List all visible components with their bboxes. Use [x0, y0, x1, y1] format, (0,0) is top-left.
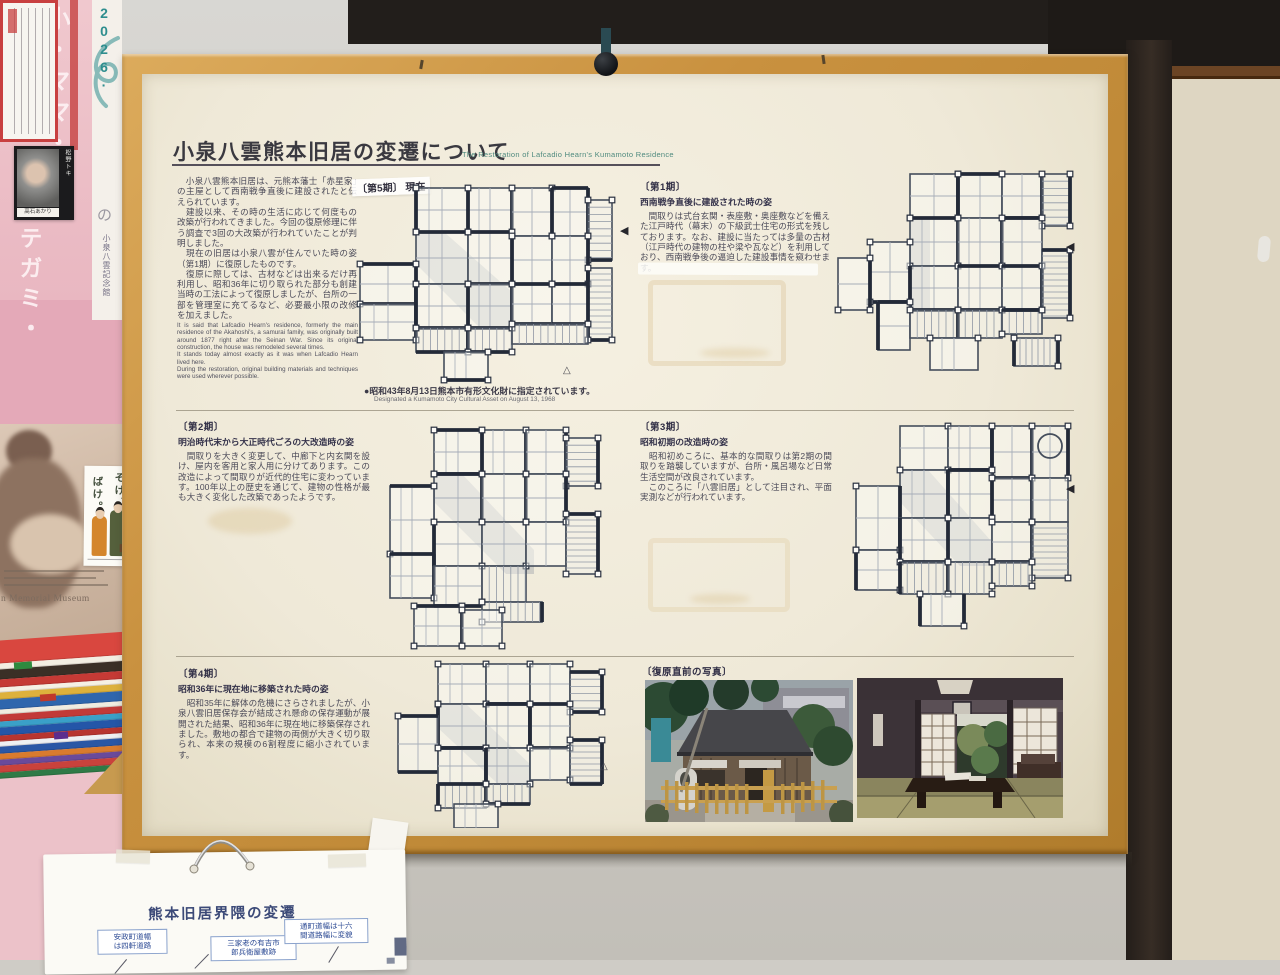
floor-plan-period5	[356, 184, 632, 384]
poster-word-bottom: テガミ・	[12, 226, 46, 356]
actor-portrait	[17, 149, 59, 207]
section4-body: 昭和35年に解体の危機にさらされましたが、小泉八雲旧居保存会が結成され懸命の保存…	[178, 698, 370, 760]
actor-name-strip: 髙石あかり	[17, 208, 59, 217]
red-border-notice	[0, 0, 58, 142]
intro-text-jp: 小泉八雲熊本旧居は、元熊本藩士「赤星家」の主屋として西南戦争直後に建設されたと伝…	[177, 176, 357, 320]
banner-swash-graphic	[84, 34, 122, 110]
section2-body: 間取りを大きく変更して、中廊下と内玄関を設け、屋内を客用と家人用に分けてあります…	[178, 451, 370, 503]
floor-plan-period1	[830, 170, 1078, 392]
poster-caption-line	[4, 584, 108, 586]
section-period1: 〔第1期〕 西南戦争直後に建設された時の姿 間取りは式台玄関・表座敷・奥座敷など…	[640, 179, 830, 273]
floor-plan-period4	[366, 660, 624, 828]
drama-card: そげ、 ばけ。	[83, 466, 122, 566]
poster-subtitle-en: The Restoration of Lafcadio Hearn's Kuma…	[462, 150, 674, 159]
hanger-knob	[594, 52, 618, 76]
tape-piece	[328, 853, 366, 867]
section4-heading: 昭和36年に現在地に移築された時の姿	[178, 682, 370, 695]
north-marker: △	[600, 762, 608, 772]
interior-photo	[857, 678, 1063, 818]
stain-smudge	[700, 348, 770, 358]
direction-marker: ◀	[620, 226, 628, 237]
section2-label: 〔第2期〕	[178, 419, 370, 433]
blank-label-strip	[638, 263, 818, 276]
actor-photo-card: 松野トキ 髙石あかり	[14, 146, 74, 220]
hanger-wire	[170, 812, 280, 874]
wood-post	[1126, 40, 1172, 960]
section4-label: 〔第4期〕	[178, 666, 370, 680]
section3-heading: 昭和初期の改造時の姿	[640, 435, 832, 448]
character-name-tag: 松野トキ	[63, 149, 72, 177]
section2-heading: 明治時代末から大正時代ごろの大改造時の姿	[178, 435, 370, 448]
red-edge-strip	[70, 0, 78, 150]
section3-body: 昭和初めころに、基本的な間取りは第2期の間取りを踏襲していますが、台所・風呂場な…	[640, 451, 832, 503]
poster-caption-line	[4, 577, 96, 579]
section-divider	[176, 656, 1074, 657]
right-wall-panel	[1172, 0, 1280, 960]
file-stack	[0, 631, 122, 779]
direction-marker: ◀	[1066, 242, 1074, 253]
section3-label: 〔第3期〕	[640, 419, 832, 433]
intro-text-en: It is said that Lafcadio Hearn's residen…	[177, 322, 358, 381]
red-tab	[40, 693, 56, 701]
stain-smudge	[690, 594, 750, 604]
tape-piece	[116, 849, 150, 863]
title-underline	[172, 164, 660, 166]
notice-red-mark	[8, 9, 17, 33]
green-tab	[14, 661, 32, 669]
stain-smudge	[208, 508, 292, 534]
section-period3: 〔第3期〕 昭和初期の改造時の姿 昭和初めころに、基本的な間取りは第2期の間取り…	[640, 419, 832, 503]
floor-plan-period2	[366, 426, 612, 656]
floor-plan-period3	[828, 422, 1078, 650]
direction-marker: ◀	[1066, 484, 1074, 495]
museum-name-vertical: 小泉八雲記念館	[101, 234, 112, 324]
card-caption-line	[88, 559, 122, 560]
section-divider	[176, 410, 1074, 411]
section-period4: 〔第4期〕 昭和36年に現在地に移築された時の姿 昭和35年に解体の危機にさらさ…	[178, 666, 370, 760]
purple-tab	[54, 732, 68, 740]
designation-caption-en: Designated a Kumamoto City Cultural Asse…	[374, 396, 555, 403]
kimono-figure-orange	[92, 516, 107, 556]
poster-figure-hands	[10, 514, 90, 574]
pink-poster-column: 小・ママ・ テガミ・ 2026· の 小泉八雲記念館 松野トキ 髙石あかり n …	[0, 0, 122, 960]
exterior-photo	[645, 680, 853, 822]
section1-label: 〔第1期〕	[640, 179, 830, 193]
section1-heading: 西南戦争直後に建設された時の姿	[640, 195, 830, 208]
photos-label: 〔復原直前の写真〕	[642, 664, 732, 678]
north-marker: △	[563, 366, 571, 376]
poster-caption-line	[4, 570, 104, 572]
poster-title: 小泉八雲熊本旧居の変遷について	[173, 136, 510, 166]
museum-english-title: n Memorial Museum	[1, 594, 121, 604]
banner-particle: の	[97, 204, 112, 225]
section-period2: 〔第2期〕 明治時代末から大正時代ごろの大改造時の姿 間取りを大きく変更して、中…	[178, 419, 370, 503]
